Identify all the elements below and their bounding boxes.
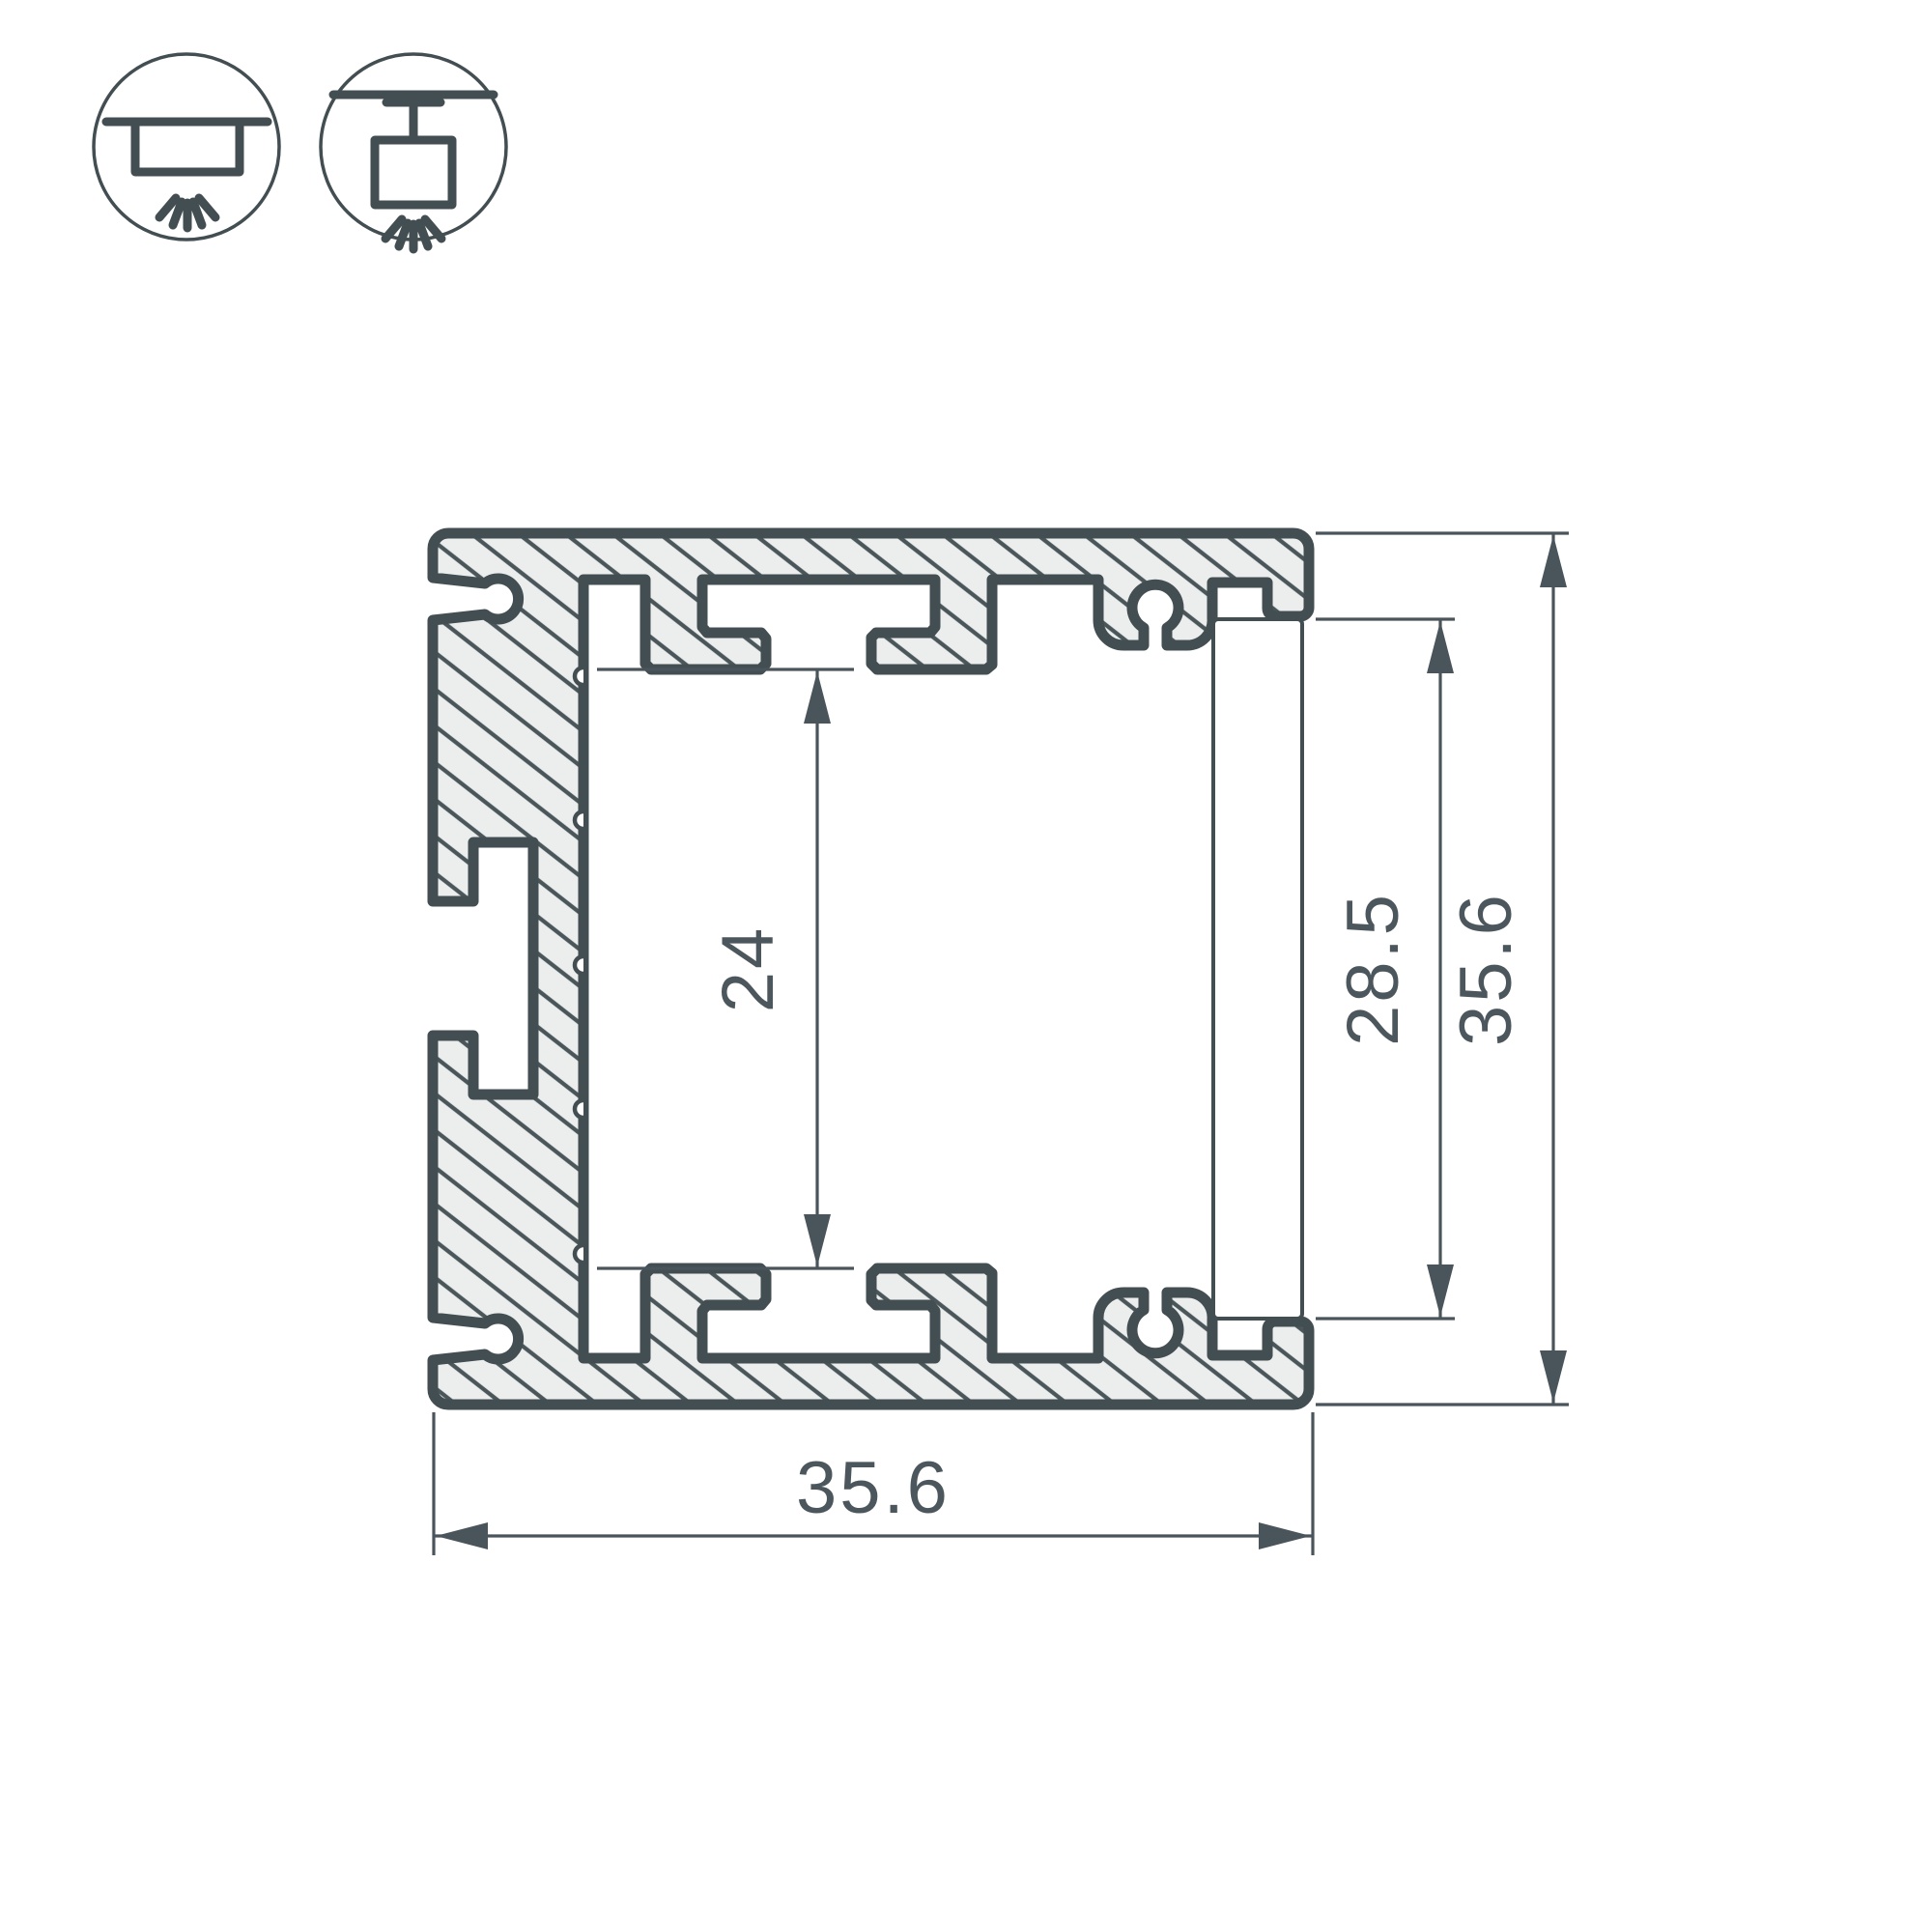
profile-box: [135, 122, 240, 172]
profile-drawing-svg: 24 28.5 35.6 35.6: [0, 0, 1932, 1932]
light-rays: [385, 219, 441, 249]
dimension-labels: 24 28.5 35.6 35.6: [707, 892, 1527, 1529]
label-cavity-height: 24: [707, 925, 789, 1013]
pendant-mount-light-icon: [321, 54, 506, 249]
profile-body-section: [433, 533, 1309, 1405]
icon-circle: [321, 54, 506, 240]
mount-type-icons: [94, 54, 506, 249]
light-rays: [159, 198, 215, 228]
label-overall-width: 35.6: [796, 1447, 951, 1529]
drawing-canvas: 24 28.5 35.6 35.6: [0, 0, 1932, 1932]
profile-box: [375, 140, 452, 205]
label-overall-height: 35.6: [1445, 892, 1527, 1046]
surface-mount-light-icon: [94, 54, 279, 240]
diffuser-cover-plate: [1213, 619, 1302, 1319]
label-cover-height: 28.5: [1332, 892, 1414, 1046]
